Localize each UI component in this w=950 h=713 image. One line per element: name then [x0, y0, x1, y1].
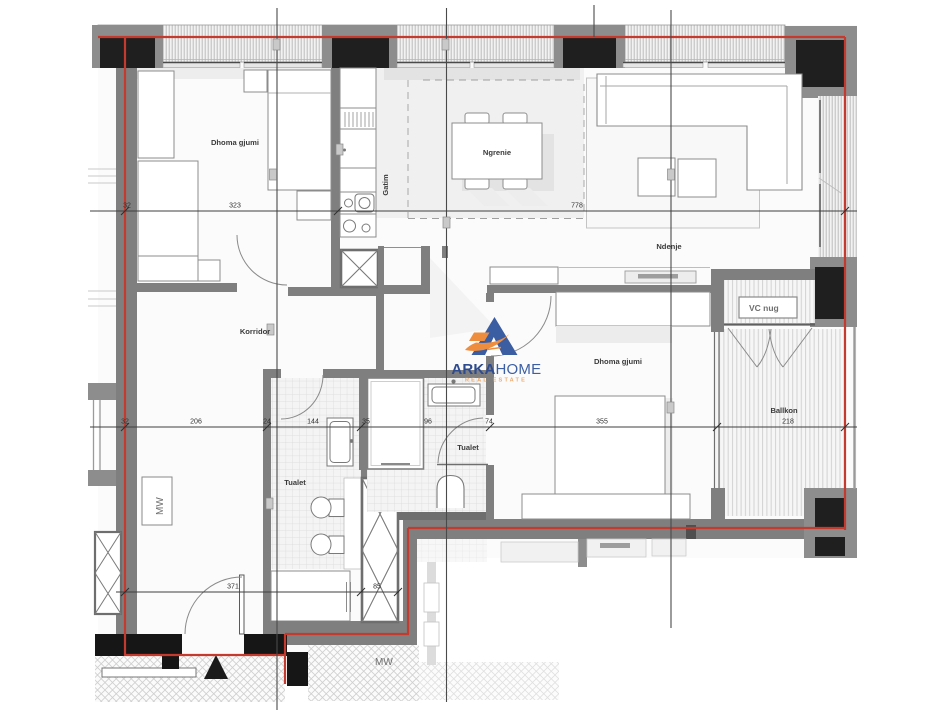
svg-text:96: 96 — [424, 419, 432, 426]
svg-text:Dhoma gjumi: Dhoma gjumi — [594, 357, 642, 366]
svg-text:355: 355 — [596, 419, 608, 426]
svg-text:Ndenje: Ndenje — [656, 242, 681, 251]
svg-text:Tualet: Tualet — [284, 478, 306, 487]
svg-text:206: 206 — [190, 419, 202, 426]
svg-text:Korridor: Korridor — [240, 327, 270, 336]
svg-text:32: 32 — [121, 419, 129, 426]
svg-text:35: 35 — [362, 419, 370, 426]
svg-text:ARKA: ARKA — [451, 361, 495, 378]
svg-text:323: 323 — [229, 203, 241, 210]
svg-text:144: 144 — [307, 419, 319, 426]
svg-text:VC nuɡ: VC nuɡ — [749, 303, 779, 313]
svg-text:REAL ESTATE: REAL ESTATE — [465, 378, 527, 384]
svg-text:Ballkon: Ballkon — [770, 406, 798, 415]
svg-text:Ngrenie: Ngrenie — [483, 148, 511, 157]
svg-text:Gatim: Gatim — [381, 174, 390, 196]
svg-text:371: 371 — [227, 584, 239, 591]
svg-text:218: 218 — [782, 419, 794, 426]
svg-text:MW: MW — [375, 657, 393, 668]
svg-text:HOME: HOME — [496, 361, 542, 378]
svg-text:778: 778 — [571, 203, 583, 210]
svg-text:MW: MW — [155, 497, 166, 515]
svg-text:24: 24 — [263, 419, 271, 426]
svg-text:Dhoma gjumi: Dhoma gjumi — [211, 138, 259, 147]
svg-text:32: 32 — [123, 203, 131, 210]
svg-text:85: 85 — [373, 584, 381, 591]
svg-text:Tualet: Tualet — [457, 443, 479, 452]
svg-text:74: 74 — [485, 419, 493, 426]
